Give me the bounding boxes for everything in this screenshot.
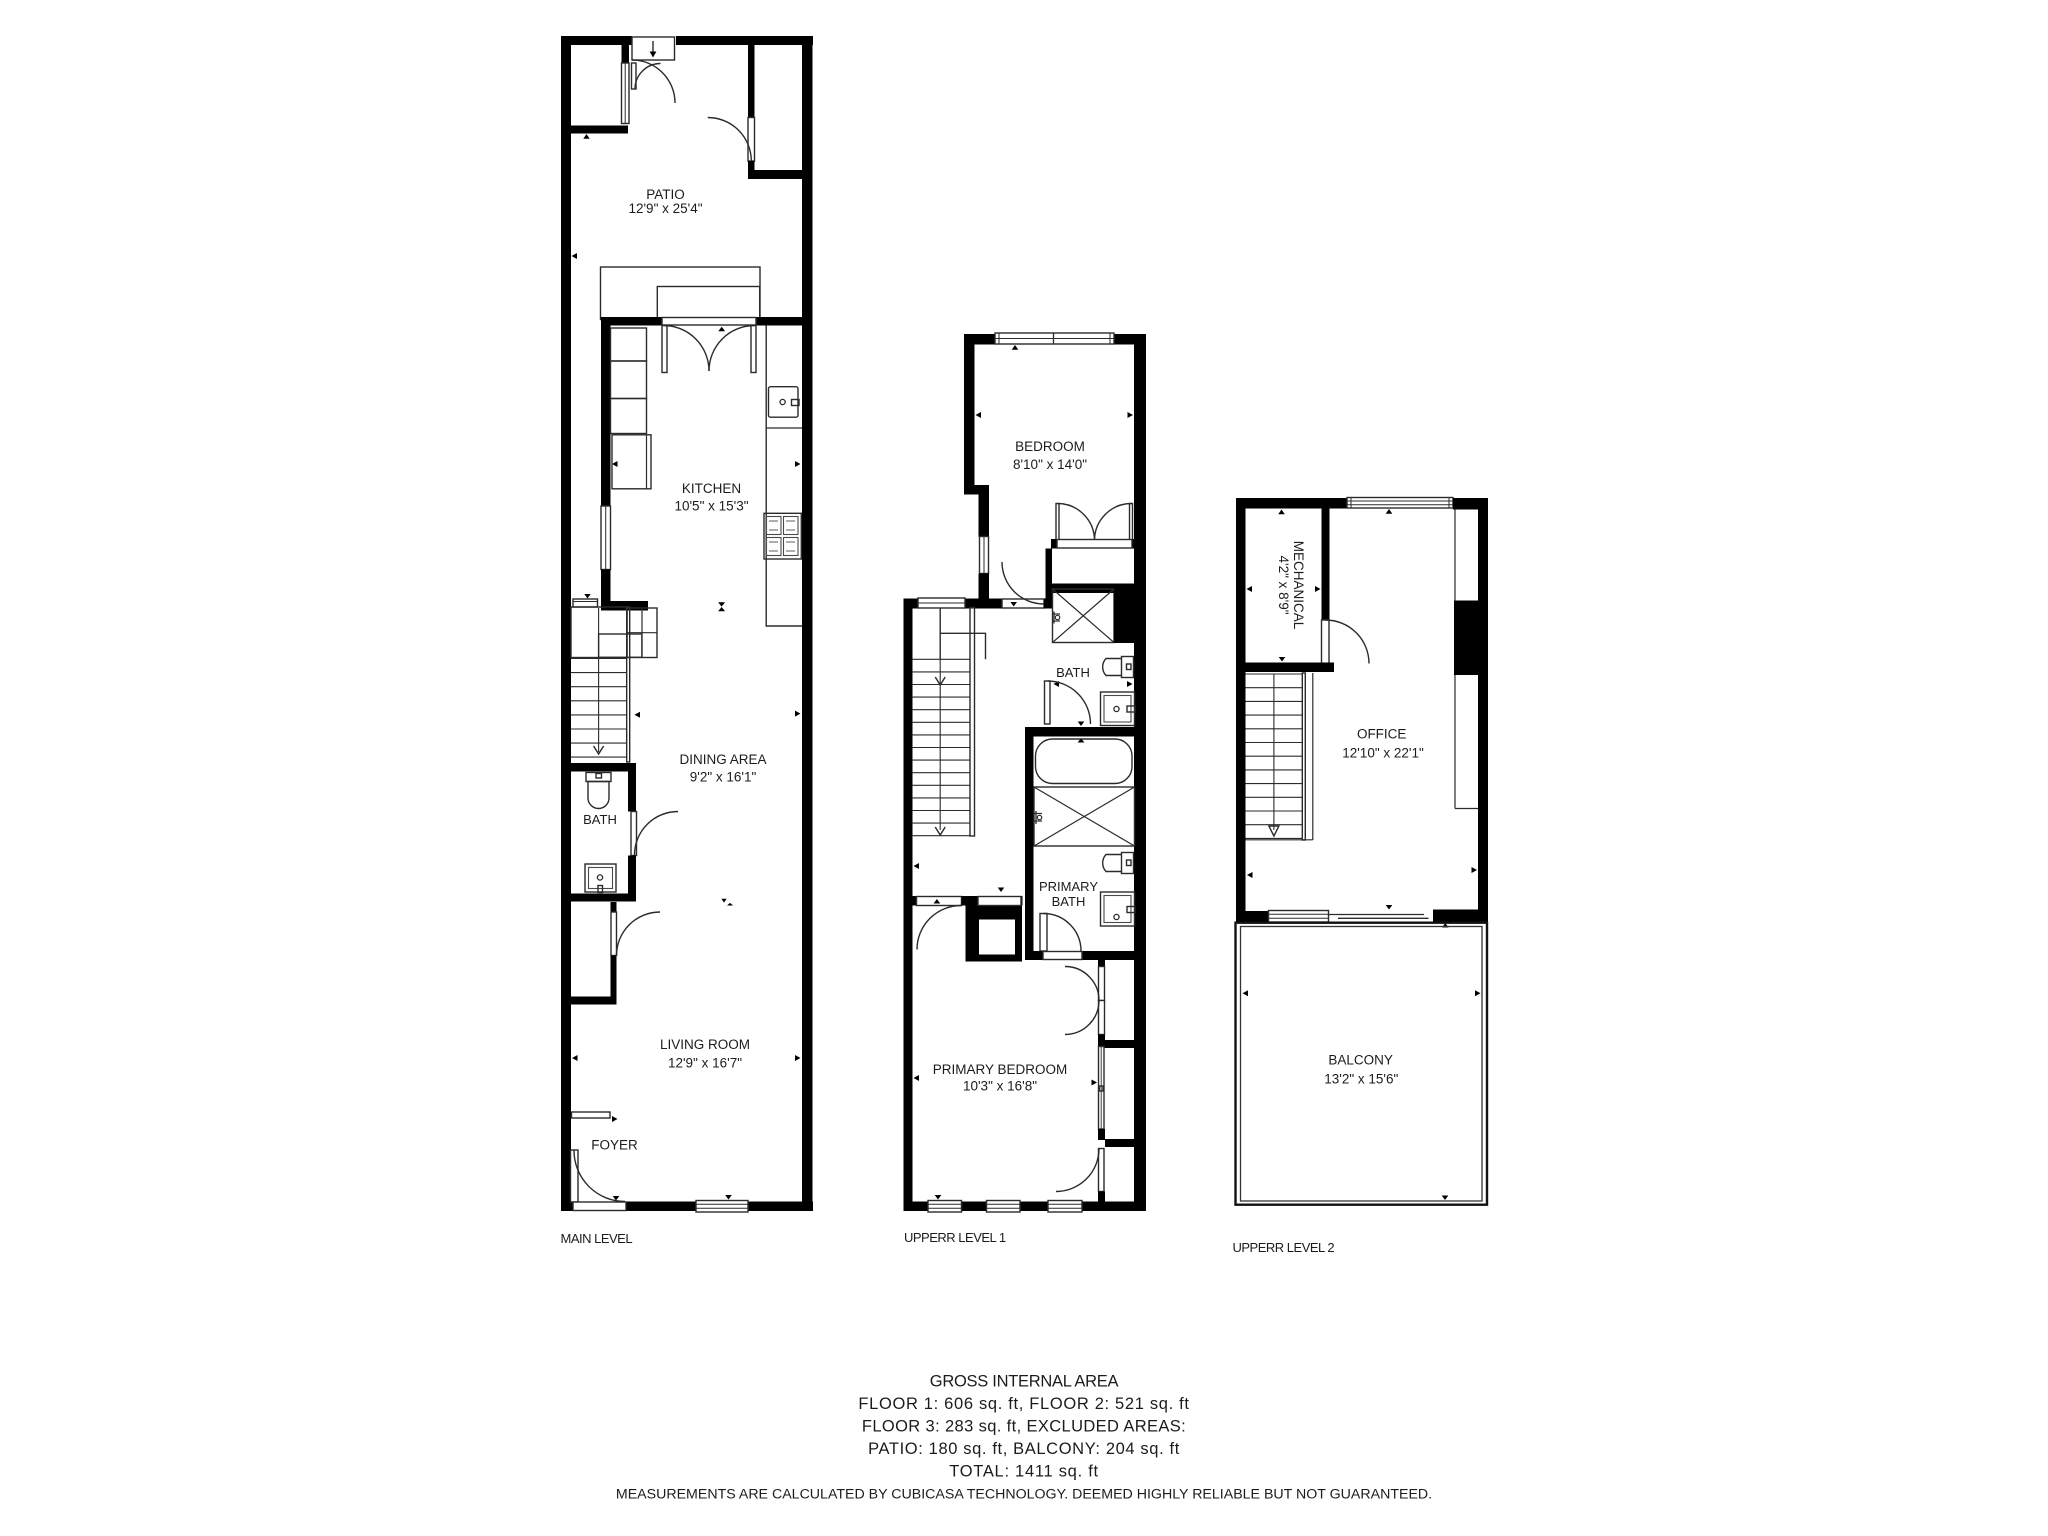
svg-text:BALCONY: BALCONY <box>1328 1053 1393 1068</box>
svg-text:12'9" x 16'7": 12'9" x 16'7" <box>668 1056 742 1071</box>
svg-text:BATH: BATH <box>1052 894 1086 909</box>
svg-text:10'3" x 16'8": 10'3" x 16'8" <box>963 1079 1037 1094</box>
svg-text:GROSS INTERNAL AREA: GROSS INTERNAL AREA <box>930 1373 1119 1391</box>
svg-text:BEDROOM: BEDROOM <box>1015 439 1085 454</box>
svg-text:FOYER: FOYER <box>591 1138 638 1153</box>
svg-text:PRIMARY: PRIMARY <box>1039 879 1098 894</box>
svg-text:TOTAL: 1411 sq. ft: TOTAL: 1411 sq. ft <box>949 1462 1099 1480</box>
svg-text:9'2" x 16'1": 9'2" x 16'1" <box>690 770 757 785</box>
svg-text:BATH: BATH <box>1056 665 1090 680</box>
svg-text:PRIMARY BEDROOM: PRIMARY BEDROOM <box>933 1062 1068 1077</box>
svg-text:BATH: BATH <box>583 812 617 827</box>
svg-text:OFFICE: OFFICE <box>1357 727 1407 742</box>
svg-text:12'9" x 25'4": 12'9" x 25'4" <box>628 201 702 216</box>
svg-text:4'2" x 8'9": 4'2" x 8'9" <box>1276 555 1291 614</box>
svg-text:PATIO: PATIO <box>646 187 685 202</box>
svg-text:10'5" x 15'3": 10'5" x 15'3" <box>674 499 748 514</box>
svg-text:DINING AREA: DINING AREA <box>679 752 766 767</box>
svg-text:UPPERR LEVEL 2: UPPERR LEVEL 2 <box>1233 1240 1335 1255</box>
svg-text:MECHANICAL: MECHANICAL <box>1291 541 1306 630</box>
svg-text:KITCHEN: KITCHEN <box>682 481 741 496</box>
svg-text:PATIO: 180 sq. ft, BALCONY: 20: PATIO: 180 sq. ft, BALCONY: 204 sq. ft <box>868 1440 1180 1458</box>
svg-text:12'10" x 22'1": 12'10" x 22'1" <box>1342 746 1424 761</box>
svg-text:FLOOR 3: 283 sq. ft, EXCLUDED: FLOOR 3: 283 sq. ft, EXCLUDED AREAS: <box>862 1418 1186 1436</box>
svg-text:LIVING ROOM: LIVING ROOM <box>660 1037 750 1052</box>
svg-text:MEASUREMENTS ARE CALCULATED BY: MEASUREMENTS ARE CALCULATED BY CUBICASA … <box>616 1487 1432 1503</box>
svg-text:FLOOR 1: 606 sq. ft, FLOOR 2:: FLOOR 1: 606 sq. ft, FLOOR 2: 521 sq. ft <box>858 1395 1189 1413</box>
svg-text:UPPERR LEVEL 1: UPPERR LEVEL 1 <box>904 1230 1006 1245</box>
svg-text:8'10" x 14'0": 8'10" x 14'0" <box>1013 457 1087 472</box>
svg-text:13'2" x 15'6": 13'2" x 15'6" <box>1324 1072 1398 1087</box>
svg-text:MAIN LEVEL: MAIN LEVEL <box>561 1231 633 1246</box>
